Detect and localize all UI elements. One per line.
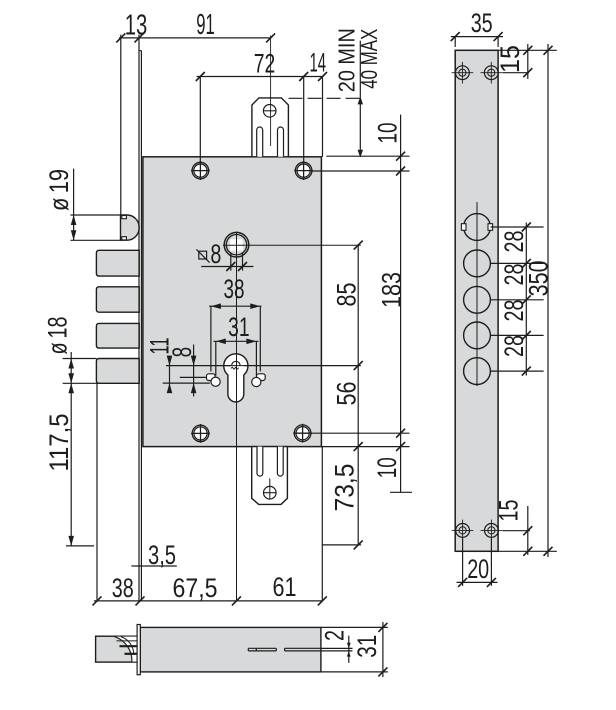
- svg-text:3,5: 3,5: [148, 540, 176, 570]
- svg-text:67,5: 67,5: [173, 573, 218, 603]
- svg-text:31: 31: [228, 312, 250, 342]
- svg-text:85: 85: [332, 283, 362, 307]
- svg-text:183: 183: [377, 272, 407, 308]
- svg-text:8: 8: [167, 347, 197, 358]
- svg-text:38: 38: [224, 274, 245, 304]
- svg-text:72: 72: [254, 49, 275, 79]
- svg-text:10: 10: [373, 123, 403, 144]
- svg-text:40 MAX: 40 MAX: [356, 29, 382, 89]
- svg-text:13: 13: [125, 10, 148, 42]
- svg-text:ø 18: ø 18: [43, 317, 73, 355]
- svg-text:28: 28: [499, 335, 529, 357]
- svg-text:15: 15: [494, 500, 524, 522]
- svg-text:91: 91: [196, 9, 215, 41]
- svg-text:20: 20: [467, 554, 489, 584]
- svg-text:10: 10: [372, 457, 402, 478]
- svg-text:350: 350: [524, 260, 554, 296]
- svg-text:15: 15: [495, 45, 525, 73]
- svg-text:14: 14: [310, 48, 327, 78]
- svg-text:28: 28: [499, 231, 529, 253]
- svg-text:2: 2: [320, 630, 350, 641]
- svg-text:73,5: 73,5: [330, 464, 360, 512]
- svg-text:56: 56: [332, 382, 362, 406]
- svg-text:8: 8: [210, 239, 221, 269]
- svg-text:117,5: 117,5: [44, 414, 74, 472]
- svg-text:38: 38: [112, 573, 134, 603]
- svg-text:ø 19: ø 19: [44, 169, 74, 211]
- svg-text:61: 61: [273, 572, 297, 602]
- svg-text:31: 31: [352, 635, 382, 658]
- svg-text:35: 35: [471, 8, 493, 38]
- svg-text:28: 28: [499, 300, 529, 322]
